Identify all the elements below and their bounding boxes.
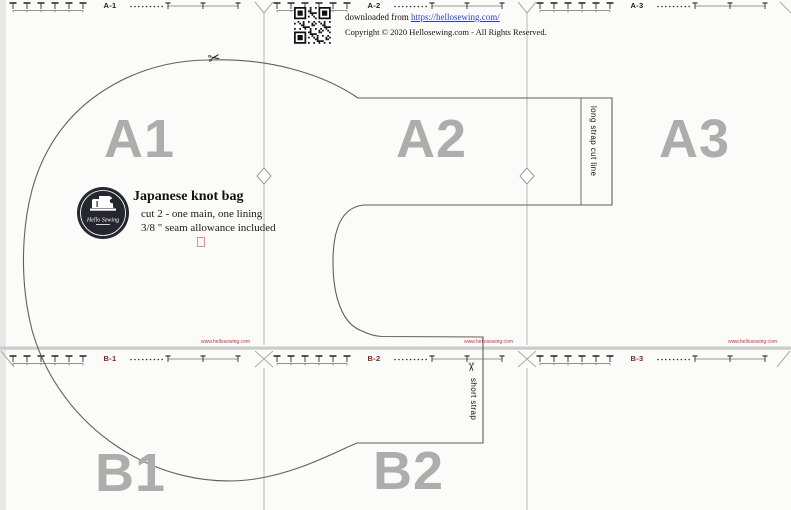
watermark-a2: www.hellosewing.com — [453, 339, 513, 345]
hellosewing-link[interactable]: https://hellosewing.com/ — [411, 12, 500, 22]
scale-ruler — [10, 356, 241, 365]
ruler-label-a3: A-3 — [624, 1, 650, 10]
corner-mark — [255, 2, 264, 13]
download-prefix: downloaded from — [345, 12, 411, 22]
alignment-diamond — [257, 168, 271, 184]
qr-code-icon — [294, 7, 331, 44]
corner-mark — [780, 2, 791, 13]
ruler-label-b2: B-2 — [361, 354, 387, 363]
page-letter-a1: A1 — [104, 112, 175, 166]
alignment-diamond — [520, 168, 534, 184]
scale-ruler — [10, 3, 241, 12]
ruler-label-b3: B-3 — [624, 354, 650, 363]
corner-mark — [777, 351, 790, 367]
pattern-title: Japanese knot bag — [133, 189, 243, 205]
ruler-label-a1: A-1 — [97, 1, 123, 10]
corner-mark — [518, 2, 527, 13]
scale-ruler — [537, 356, 768, 365]
pattern-drawing: Hello Sewing — [0, 0, 791, 510]
page-letter-a3: A3 — [659, 112, 730, 166]
copyright-text: Copyright © 2020 Hellosewing.com - All R… — [345, 27, 547, 37]
page-boundary-horizontal — [0, 347, 791, 350]
pattern-seam-note: 3/8 " seam allowance included — [141, 222, 276, 234]
scissors-icon: ✂ — [465, 362, 477, 372]
page-letter-b2: B2 — [373, 444, 444, 498]
corner-mark — [1, 351, 14, 367]
corner-mark — [527, 2, 536, 13]
scissors-icon: ✂ — [207, 50, 222, 67]
registration-mark — [197, 237, 205, 247]
hello-sewing-logo: Hello Sewing — [77, 187, 129, 239]
long-strap-cut-line-label: long strap cut line — [589, 106, 598, 176]
ruler-label-b1: B-1 — [97, 354, 123, 363]
corner-mark — [264, 2, 273, 13]
page-letter-a2: A2 — [396, 112, 467, 166]
pattern-sheet: Hello Sewing downloaded from https://hel… — [0, 0, 791, 510]
watermark-a1: www.hellosewing.com — [190, 339, 250, 345]
download-note: downloaded from https://hellosewing.com/ — [345, 12, 500, 22]
short-strap-label: short strap — [469, 378, 478, 420]
watermark-a3: www.hellosewing.com — [717, 339, 777, 345]
pattern-cut-note: cut 2 - one main, one lining — [141, 208, 262, 220]
scale-ruler — [537, 3, 768, 12]
svg-text:Hello Sewing: Hello Sewing — [86, 218, 119, 224]
ruler-label-a2: A-2 — [361, 1, 387, 10]
page-letter-b1: B1 — [95, 446, 166, 500]
